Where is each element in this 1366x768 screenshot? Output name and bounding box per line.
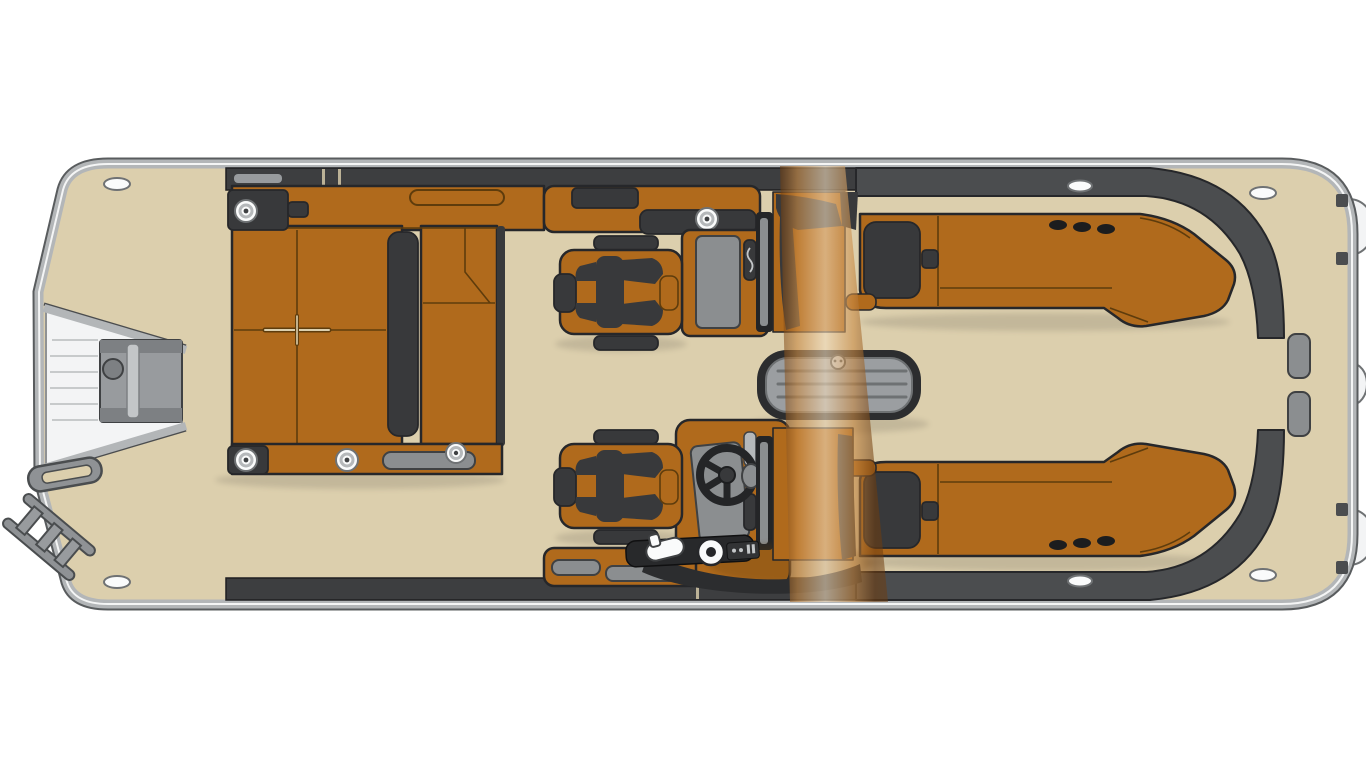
pod-bracket <box>1336 503 1348 516</box>
cup-holder <box>235 200 257 222</box>
chair-slide-bar <box>594 430 658 444</box>
speaker <box>1097 536 1115 546</box>
stern-gate-pad <box>1288 392 1310 436</box>
switch-bar <box>752 544 756 553</box>
floor-plan-canvas <box>0 0 1366 768</box>
gauge <box>698 539 724 565</box>
starboard-captain-chair <box>554 430 682 544</box>
gate-bottom-rail <box>100 408 182 422</box>
lounge-tab <box>922 502 938 520</box>
cup-holder <box>696 208 718 230</box>
windshield-glass <box>760 218 768 326</box>
lounge-end-panel <box>497 226 505 446</box>
pod-bracket <box>1336 194 1348 207</box>
bow-cleat-port <box>104 178 130 190</box>
helm-dash-panel <box>690 442 750 543</box>
boarding-gate <box>100 340 182 422</box>
speaker <box>1049 540 1067 550</box>
pod-bracket <box>1336 252 1348 265</box>
stern-gate-pad <box>1288 334 1310 378</box>
gate-hinge <box>234 174 282 183</box>
speaker <box>1073 222 1091 232</box>
bow-lounge-port-bench <box>232 226 402 448</box>
chaise-pad <box>388 232 418 436</box>
console-door-panel <box>696 236 740 328</box>
port-captain-chair <box>554 236 682 350</box>
cup-holder <box>446 443 466 463</box>
gate-hinge-pin <box>103 359 123 379</box>
cup-holder <box>336 449 358 471</box>
cup-holder <box>235 449 257 471</box>
pontoon-floor-plan <box>0 0 1366 768</box>
bow-cleat-starboard <box>104 576 130 588</box>
lounge-headrest <box>864 222 920 298</box>
switch-bar <box>747 545 751 554</box>
gate-latch-bar <box>127 344 139 418</box>
pod-bracket <box>1336 561 1348 574</box>
stern-cleat-port <box>1250 187 1276 199</box>
speaker <box>1049 220 1067 230</box>
cabinet-pad <box>572 188 638 208</box>
speaker <box>1097 224 1115 234</box>
bow-lounge-chaise-bench <box>421 226 497 444</box>
midship-cleat-starboard <box>1068 576 1092 587</box>
chair-slide-bar <box>594 236 658 250</box>
throttle-lever <box>648 533 661 547</box>
bow-l-lounge <box>228 186 544 474</box>
corner-tab <box>288 202 308 217</box>
stern-cleat-starboard <box>1250 569 1276 581</box>
cabinet-tread <box>552 560 600 575</box>
lounge-tab <box>922 250 938 268</box>
speaker <box>1073 538 1091 548</box>
chair-slide-bar <box>594 336 658 350</box>
midship-cleat-port <box>1068 181 1092 192</box>
switch-panel <box>726 541 759 560</box>
windshield-glass <box>760 442 768 544</box>
gate-top-rail <box>100 340 182 353</box>
